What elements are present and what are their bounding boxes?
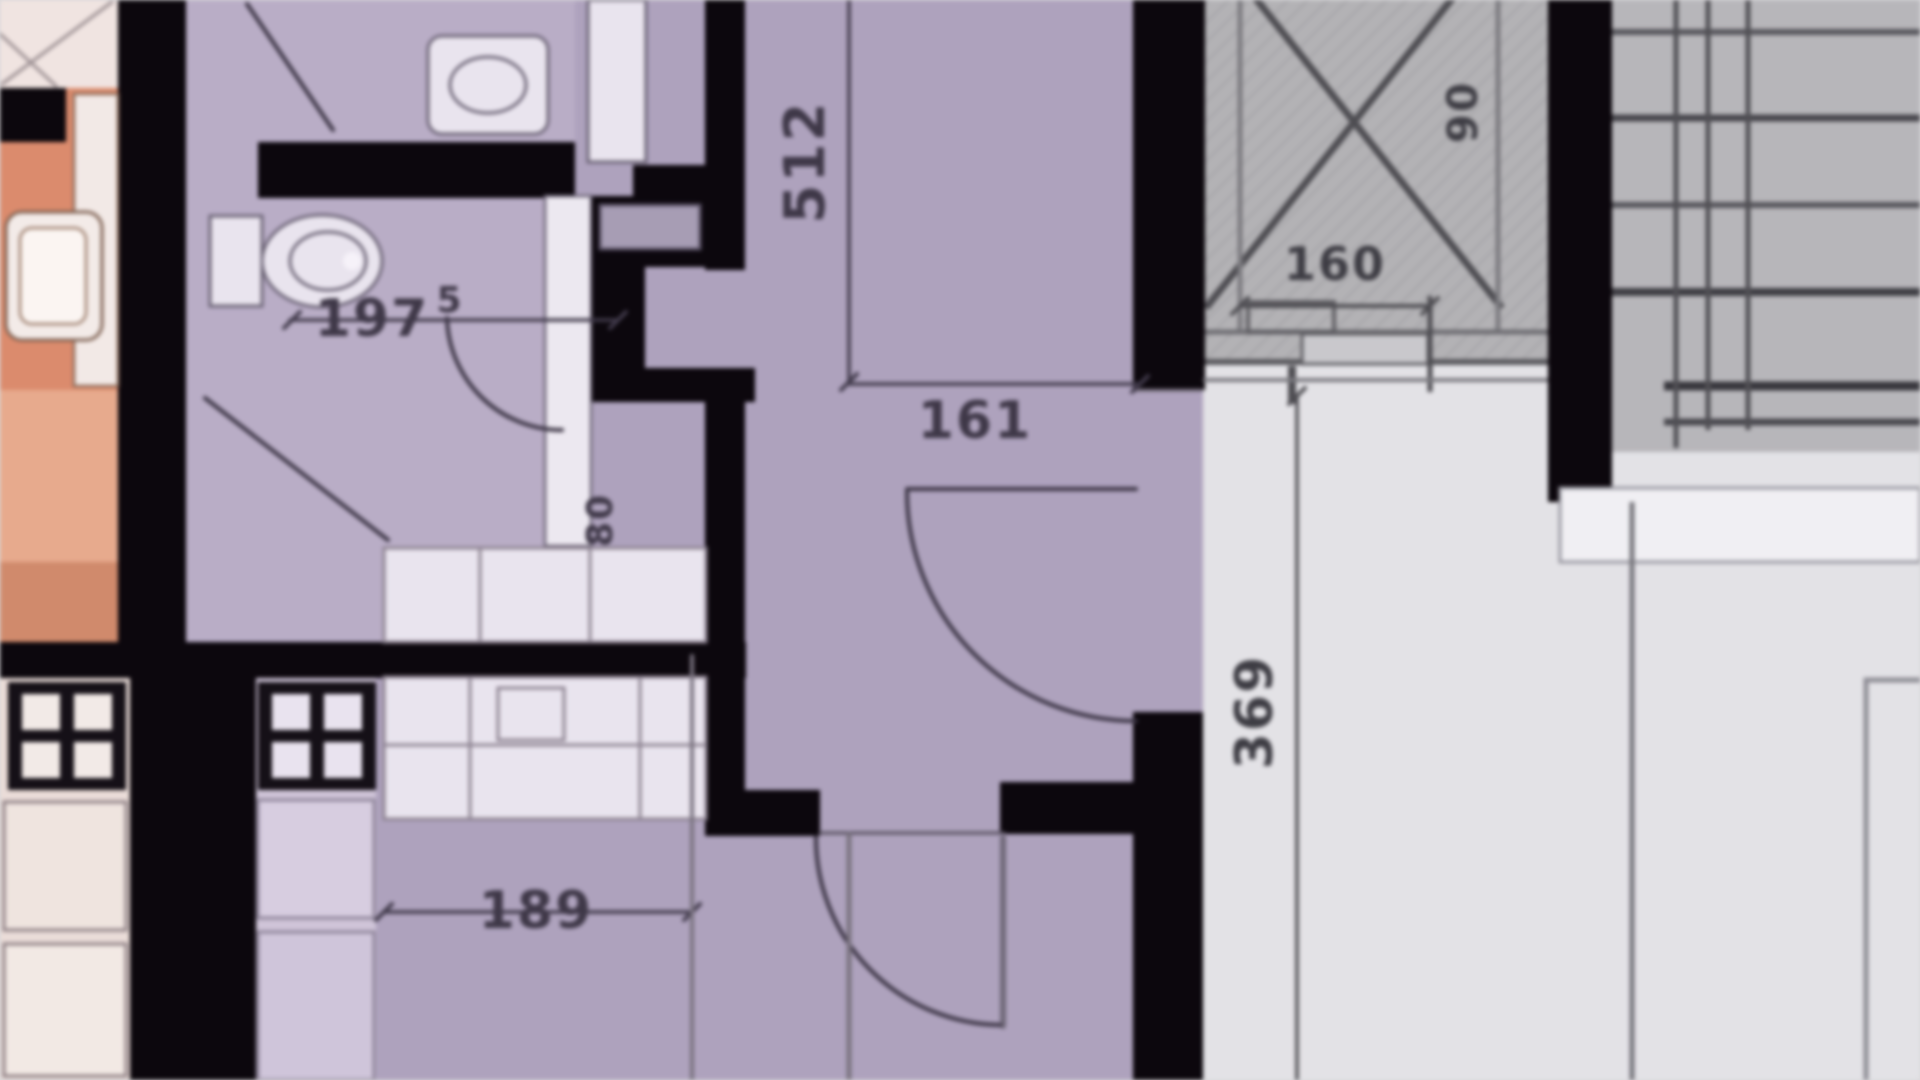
- furniture-rect: [258, 800, 374, 918]
- radiator: [600, 205, 700, 249]
- dim-label-197-sup: 5: [436, 280, 463, 321]
- checker-box: [258, 682, 376, 790]
- checker-box: [8, 682, 126, 790]
- floor-plan: 512 161 197 5 80 189 369 160 90: [0, 0, 1920, 1080]
- wall-corridor-left: [705, 402, 745, 792]
- wall-stub-horizontal: [575, 368, 755, 402]
- wall-bath-divider: [258, 142, 575, 198]
- orange-room-cabinet-inner: [20, 228, 86, 324]
- shaft-step: [1302, 334, 1428, 364]
- wall-bottom-band: [0, 642, 746, 678]
- dim-label-189: 189: [479, 881, 594, 941]
- wall-stair-left: [1548, 0, 1612, 502]
- dim-label-512: 512: [773, 101, 838, 224]
- wall-left-of-shaft: [1133, 0, 1205, 390]
- furniture-rect: [4, 802, 126, 930]
- room-left-orange-light: [0, 390, 120, 562]
- floor-plan-drawing: 512 161 197 5 80 189 369 160 90: [0, 0, 1920, 1080]
- dim-label-80: 80: [580, 493, 621, 547]
- dim-label-160: 160: [1284, 237, 1386, 291]
- room-left-orange-dim: [0, 562, 120, 644]
- corridor-right-tab: [1133, 390, 1203, 712]
- wall-bottomleft-column: [130, 677, 256, 1080]
- counter-lower: [384, 677, 706, 819]
- dim-label-197: 197: [315, 289, 430, 349]
- counter-upper: [384, 548, 706, 642]
- wall-topleft-chunk: [0, 88, 66, 142]
- furniture-rect: [4, 944, 126, 1076]
- room-left-pink-top: [0, 0, 120, 92]
- dim-label-161: 161: [918, 391, 1033, 451]
- dim-label-90: 90: [1438, 81, 1487, 143]
- landing-band: [1560, 488, 1920, 562]
- wall-left-vertical: [118, 0, 186, 644]
- toilet-tank: [210, 216, 262, 306]
- wall-corridor-right-lower: [1133, 712, 1203, 1080]
- furniture-rect: [258, 932, 374, 1080]
- toilet-dot: [343, 252, 361, 270]
- dim-label-369: 369: [1225, 655, 1285, 770]
- wall-corridor-bottom-right: [1000, 782, 1133, 834]
- window-bar: [588, 0, 646, 162]
- wall-corridor-bottom: [705, 790, 820, 836]
- sink: [428, 36, 548, 134]
